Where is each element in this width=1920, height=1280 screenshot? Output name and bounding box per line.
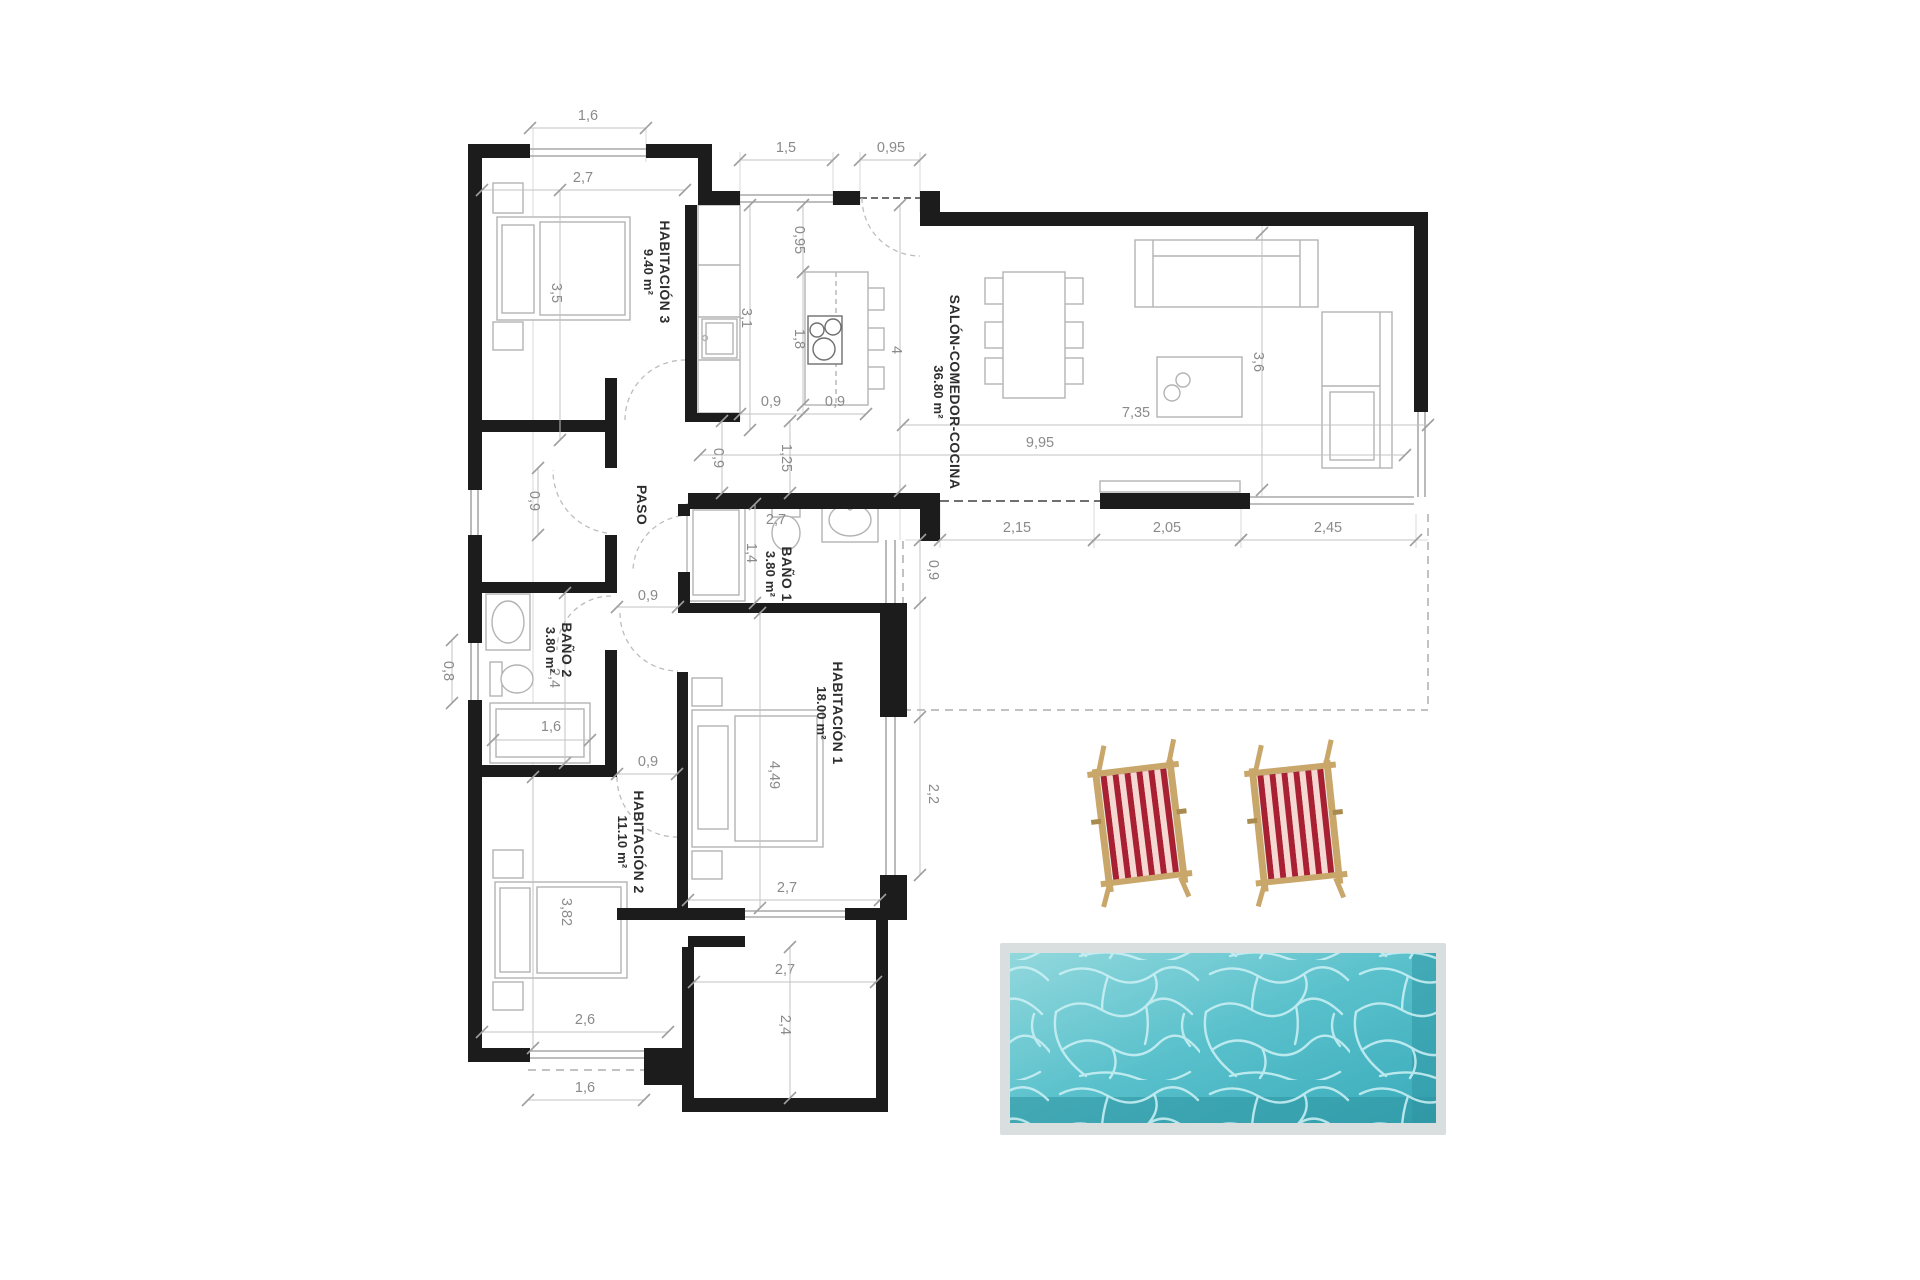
dimension-label: 0,9 [526,491,542,511]
room-name: HABITACIÓN 2 [631,790,648,893]
sideboard [1100,481,1240,492]
dimension-label: 0,95 [877,140,905,156]
room-name: HABITACIÓN 3 [657,220,674,323]
canvas-background [0,0,1920,1280]
dimension-label: 2,15 [1003,520,1031,536]
dimension-label: 3,5 [548,283,564,303]
dimension-label: 3,82 [558,898,574,926]
room-label-bano-2: BAÑO 23.80 m² [543,622,576,677]
kitchen-counter [698,205,740,413]
dimension-label: 2,2 [925,784,941,804]
dimension-label: 0,8 [440,661,456,681]
room-name: HABITACIÓN 1 [830,661,847,764]
dimension-label: 1,5 [776,140,796,156]
dimension-label: 0,9 [825,394,845,410]
dimension-label: 2,7 [775,962,795,978]
room-area: 9.40 m² [641,249,656,296]
dimension-label: 1,6 [575,1080,595,1096]
room-area: 11.10 m² [615,816,630,869]
floor-plan-drawing: 1,62,73,51,50,950,953,11,840,90,90,91,25… [0,0,1920,1280]
dimension-label: 0,9 [761,394,781,410]
dimension-label: 2,45 [1314,520,1342,536]
room-area: 18.00 m² [814,686,829,740]
dimension-label: 9,95 [1026,435,1054,451]
room-label-bano-1: BAÑO 13.80 m² [763,546,796,601]
dimension-label: 4 [888,346,904,354]
dimension-label: 0,95 [791,226,807,254]
room-label-paso: PASO [634,485,650,525]
dimension-label: 2,7 [573,170,593,186]
dimension-label: 0,9 [638,754,658,770]
floor-plan-page: 1,62,73,51,50,950,953,11,840,90,90,91,25… [0,0,1920,1280]
dimension-label: 2,4 [777,1015,793,1035]
room-name: BAÑO 1 [779,546,796,601]
dining-table [985,272,1083,398]
dimension-label: 2,7 [766,512,786,528]
room-name: SALÓN-COMEDOR-COCINA [947,295,964,490]
dimension-label: 7,35 [1122,405,1150,421]
cooktop-icon [808,316,842,364]
kitchen-island [805,272,884,405]
dimension-label: 2,7 [777,880,797,896]
coffee-table [1157,357,1242,417]
dimension-label: 1,25 [778,444,794,472]
dimension-label: 0,9 [638,588,658,604]
chaise-sofa [1322,312,1392,468]
dimension-label: 2,6 [575,1012,595,1028]
dimension-label: 1,6 [578,108,598,124]
dimension-label: 3,1 [738,308,754,328]
room-area: 36.80 m² [931,365,946,419]
swimming-pool [1000,943,1446,1135]
dimension-label: 0,9 [710,448,726,468]
room-name: PASO [634,485,650,525]
dimension-label: 1,4 [743,543,759,563]
pool-caustics [1010,953,1436,1123]
dimension-label: 2,05 [1153,520,1181,536]
room-name: BAÑO 2 [559,622,576,677]
room-area: 3.80 m² [543,627,558,674]
dimension-label: 4,49 [766,761,782,789]
dimension-label: 0,9 [925,560,941,580]
room-area: 3.80 m² [763,551,778,598]
dimension-label: 3,6 [1250,352,1266,372]
dimension-label: 1,8 [791,329,807,349]
dimension-label: 1,6 [541,719,561,735]
sofa [1135,240,1318,307]
